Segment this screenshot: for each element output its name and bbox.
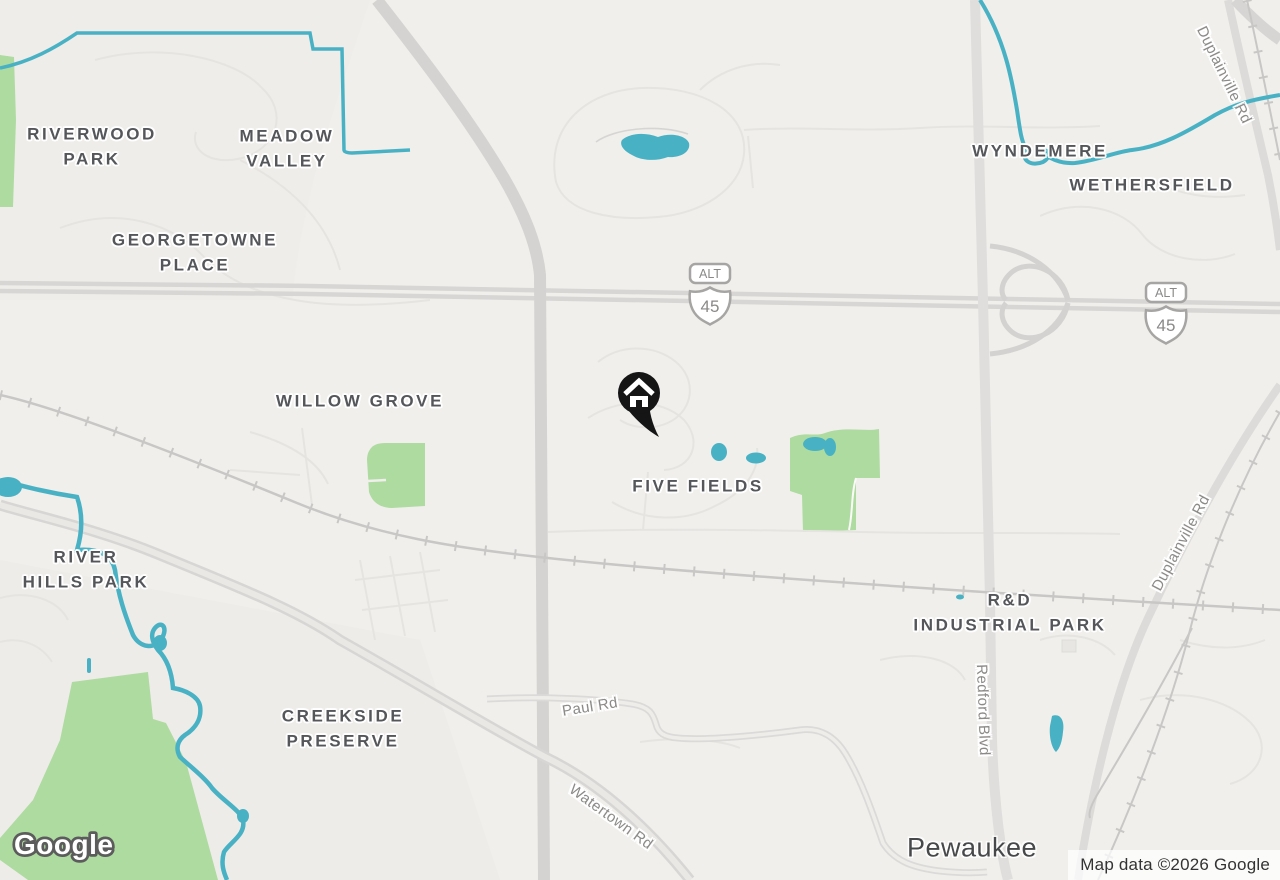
road-duplainville-south: [1078, 385, 1280, 880]
shield-route-number: 45: [1157, 316, 1176, 335]
road-redford-blvd: [975, 0, 1008, 880]
park-area: [0, 55, 16, 207]
shield-banner-text: ALT: [1155, 286, 1177, 300]
home-icon-door: [636, 400, 642, 407]
google-logo[interactable]: Google: [8, 823, 148, 872]
building: [1062, 640, 1076, 652]
map-attribution: Map data ©2026 Google: [1068, 850, 1280, 880]
google-logo-text: Google: [14, 829, 113, 860]
park-trail: [367, 480, 386, 481]
shield-route-number: 45: [701, 297, 720, 316]
road-paul: [487, 698, 987, 873]
road-paul: [487, 698, 987, 873]
road-corner: [1235, 0, 1280, 40]
map-tiles: ALT 45 ALT 45: [0, 0, 1280, 880]
park-area: [367, 443, 425, 508]
shield-banner-text: ALT: [699, 267, 721, 281]
map-canvas[interactable]: ALT 45 ALT 45 RIVERWOOD PARK MEADOW VALL…: [0, 0, 1280, 880]
route-shield-alt45-east: ALT 45: [1146, 283, 1187, 344]
route-shield-alt45-west: ALT 45: [690, 264, 731, 325]
